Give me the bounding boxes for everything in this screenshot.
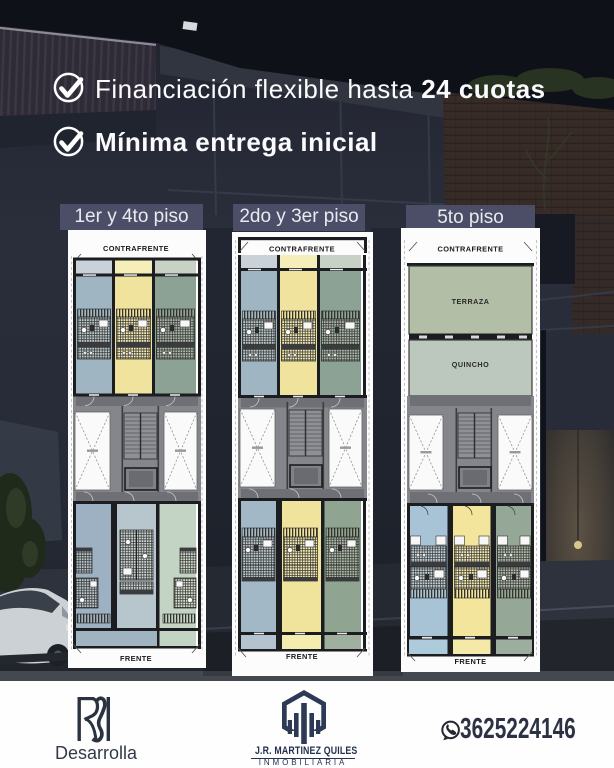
svg-text:CONTRAFRENTE: CONTRAFRENTE — [103, 244, 169, 253]
svg-text:FRENTE: FRENTE — [120, 654, 152, 663]
svg-text:QUINCHO: QUINCHO — [452, 360, 489, 369]
svg-text:CONTRAFRENTE: CONTRAFRENTE — [269, 245, 335, 254]
svg-text:FRENTE: FRENTE — [286, 652, 318, 661]
svg-text:FRENTE: FRENTE — [455, 657, 487, 666]
svg-text:CONTRAFRENTE: CONTRAFRENTE — [438, 245, 504, 254]
svg-text:TERRAZA: TERRAZA — [452, 297, 490, 306]
